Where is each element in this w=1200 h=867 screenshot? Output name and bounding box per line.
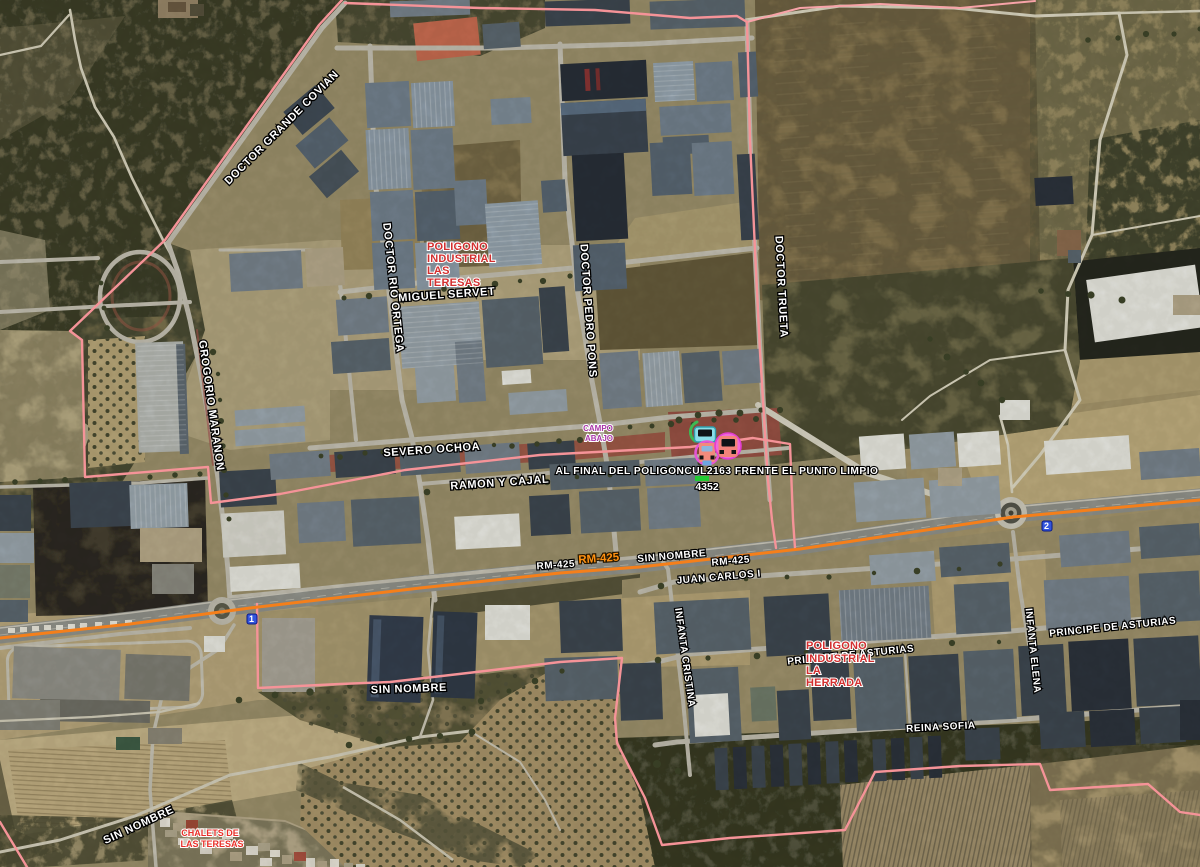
svg-text:1: 1 [249,614,254,624]
svg-text:POLIGONO: POLIGONO [806,640,867,652]
svg-text:HERRADA: HERRADA [806,677,862,689]
svg-text:INDUSTRIAL: INDUSTRIAL [806,653,875,665]
svg-text:LA: LA [806,665,821,677]
svg-text:4352: 4352 [695,481,719,493]
svg-text:CAMPO: CAMPO [583,424,613,433]
svg-text:ABAJO: ABAJO [585,434,613,443]
svg-text:CHALETS DE: CHALETS DE [181,828,239,838]
svg-text:POLIGONO: POLIGONO [427,241,488,253]
svg-text:LAS TERESAS: LAS TERESAS [180,839,243,849]
svg-text:TERESAS: TERESAS [427,277,480,289]
svg-text:LAS: LAS [427,265,450,277]
svg-text:INDUSTRIAL: INDUSTRIAL [427,253,496,265]
svg-text:2: 2 [1044,521,1049,531]
svg-text:AL FINAL DEL POLIGONCUL2163 FR: AL FINAL DEL POLIGONCUL2163 FRENTE EL PU… [556,466,879,477]
